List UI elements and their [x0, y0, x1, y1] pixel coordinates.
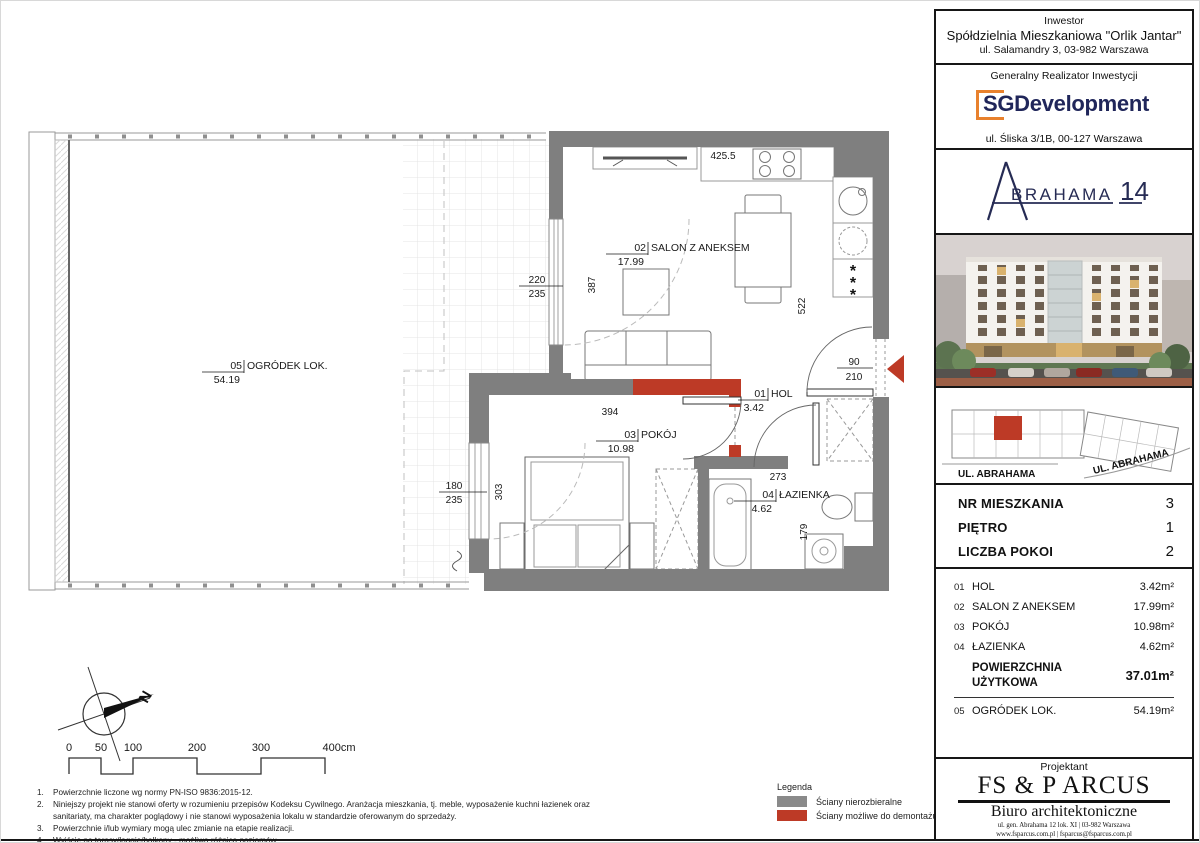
legend-item: Ściany możliwe do demontażu [777, 810, 947, 821]
wardrobe-hol [827, 399, 873, 461]
project-name: BRAHAMA [1011, 185, 1113, 204]
svg-text:100: 100 [124, 742, 142, 754]
architect-address2: www.fsparcus.com.pl | fsparcus@fsparcus.… [996, 831, 1132, 838]
svg-text:4.62: 4.62 [752, 503, 773, 515]
svg-text:10.98: 10.98 [608, 443, 634, 455]
highlighted-unit [994, 416, 1022, 440]
svg-text:01: 01 [754, 388, 766, 400]
drawing-sheet: * * * [0, 0, 1200, 843]
total-area-row: POWIERZCHNIA UŻYTKOWA 37.01m² [954, 661, 1174, 691]
project-number: 14 [1120, 176, 1149, 206]
legend-item: Ściany nierozbieralne [777, 796, 947, 807]
floor-plan: * * * [1, 1, 936, 781]
total-label-line1: POWIERZCHNIA [972, 662, 1062, 674]
investor-label: Inwestor [936, 15, 1192, 27]
svg-text:235: 235 [446, 495, 463, 506]
coffee-table [623, 269, 669, 315]
svg-text:54.19: 54.19 [214, 374, 240, 386]
wardrobe-pokoj [656, 469, 698, 569]
unit-info-row: NR MIESZKANIA 3 [958, 495, 1178, 512]
total-area-value: 37.01m² [1126, 668, 1174, 683]
dim-pokoj-height: 303 [494, 483, 505, 500]
legend-title: Legenda [777, 782, 947, 792]
svg-text:03: 03 [624, 429, 636, 441]
unit-info-label: LICZBA POKOI [958, 544, 1053, 559]
svg-text:210: 210 [846, 372, 863, 383]
dim-salon-right: 522 [797, 297, 808, 314]
sgdevelopment-logo: SGDevelopment [936, 88, 1192, 128]
nightstand [630, 523, 654, 569]
street-label-left: UL. ABRAHAMA [958, 469, 1035, 480]
legend-swatch-red [777, 810, 807, 821]
room-row: 04 ŁAZIENKA 4.62m² [954, 641, 1174, 653]
tv-bench [593, 147, 697, 169]
svg-text:SALON Z ANEKSEM: SALON Z ANEKSEM [651, 242, 750, 254]
footnote: 3. Powierzchnie i/lub wymiary mogą ulec … [37, 823, 597, 835]
toilet-tank [855, 493, 873, 521]
entrance-arrow [887, 355, 904, 383]
svg-text:200: 200 [188, 742, 206, 754]
developer-address: ul. Śliska 3/1B, 00-127 Warszawa [936, 133, 1192, 145]
unit-info-value: 2 [1166, 543, 1178, 560]
room-table: 01 HOL 3.42m² 02 SALON Z ANEKSEM 17.99m²… [936, 569, 1192, 725]
svg-text:3.42: 3.42 [744, 402, 765, 414]
sidebar-spacer [936, 725, 1192, 758]
legend-label: Ściany możliwe do demontażu [816, 811, 938, 821]
north-letter: N [136, 688, 156, 706]
room-row: 03 POKÓJ 10.98m² [954, 621, 1174, 633]
svg-text:05: 05 [230, 360, 242, 372]
svg-text:220: 220 [529, 275, 546, 286]
site-plan-map: UL. ABRAHAMA UL. ABRAHAMA [936, 388, 1192, 483]
room-row: 02 SALON Z ANEKSEM 17.99m² [954, 601, 1174, 613]
investor-block: Inwestor Spółdzielnia Mieszkaniowa "Orli… [936, 11, 1192, 65]
footnote: 1. Powierzchnie liczone wg normy PN-ISO … [37, 787, 597, 799]
unit-info-value: 3 [1166, 495, 1178, 512]
garden-row: 05 OGRÓDEK LOK. 54.19m² [954, 705, 1174, 717]
room-row: 01 HOL 3.42m² [954, 581, 1174, 593]
developer-label: Generalny Realizator Inwestycji [936, 70, 1192, 82]
room-label-garden: 05 OGRÓDEK LOK. 54.19 [202, 359, 328, 386]
unit-info-value: 1 [1166, 519, 1178, 536]
sink [839, 187, 867, 215]
svg-text:300: 300 [252, 742, 270, 754]
svg-text:235: 235 [529, 289, 546, 300]
svg-text:OGRÓDEK LOK.: OGRÓDEK LOK. [247, 359, 328, 372]
unit-info-row: PIĘTRO 1 [958, 519, 1178, 536]
footnotes: 1. Powierzchnie liczone wg normy PN-ISO … [37, 787, 597, 843]
dim-top-width: 425.5 [710, 151, 735, 162]
svg-text:50: 50 [95, 742, 107, 754]
unit-info-row: LICZBA POKOI 2 [958, 543, 1178, 560]
architect-subtitle: Biuro architektoniczne [936, 804, 1192, 820]
investor-address: ul. Salamandry 3, 03-982 Warszawa [936, 44, 1192, 56]
abrahama-logo: BRAHAMA 14 [936, 150, 1192, 228]
table-divider [954, 697, 1174, 698]
svg-text:17.99: 17.99 [618, 256, 644, 268]
svg-text:POKÓJ: POKÓJ [641, 428, 677, 441]
unit-info: NR MIESZKANIA 3 PIĘTRO 1 LICZBA POKOI 2 [936, 485, 1192, 569]
sofa [585, 331, 711, 381]
dim-lazienka-width: 273 [770, 472, 787, 483]
svg-text:90: 90 [848, 357, 860, 368]
svg-text:180: 180 [446, 481, 463, 492]
architect-address1: ul. gen. Abrahama 12 lok. XI | 03-982 Wa… [998, 822, 1131, 829]
architect-name: FS & P ARCUS [936, 773, 1192, 799]
svg-text:0: 0 [66, 742, 72, 754]
svg-text:04: 04 [762, 489, 774, 501]
building-render [936, 235, 1192, 388]
svg-text:HOL: HOL [771, 388, 793, 400]
fridge-symbol: * * * [850, 263, 857, 304]
dim-pokoj-width: 394 [602, 407, 619, 418]
title-block: Inwestor Spółdzielnia Mieszkaniowa "Orli… [934, 9, 1194, 841]
svg-text:400cm: 400cm [322, 742, 355, 754]
developer-logo-text: SGDevelopment [983, 91, 1149, 117]
total-label-line2: UŻYTKOWA [972, 677, 1038, 689]
scale-bar: 0 50 100 200 300 400cm [66, 742, 356, 774]
svg-text:ŁAZIENKA: ŁAZIENKA [779, 489, 830, 501]
investor-name: Spółdzielnia Mieszkaniowa "Orlik Jantar" [936, 28, 1192, 43]
legend-swatch-gray [777, 796, 807, 807]
legend: Legenda Ściany nierozbieralne Ściany moż… [777, 782, 947, 824]
architect-block: Projektant FS & P ARCUS Biuro architekto… [936, 757, 1192, 839]
building-render-image [936, 235, 1192, 386]
unit-info-label: NR MIESZKANIA [958, 496, 1064, 511]
nightstand [500, 523, 524, 569]
site-plan: UL. ABRAHAMA UL. ABRAHAMA [936, 388, 1192, 485]
svg-text:02: 02 [634, 242, 646, 254]
project-logo: BRAHAMA 14 [936, 150, 1192, 235]
dim-lazienka-height: 179 [799, 523, 810, 540]
svg-text:*: * [850, 287, 857, 304]
unit-info-label: PIĘTRO [958, 520, 1008, 535]
legend-label: Ściany nierozbieralne [816, 797, 902, 807]
developer-block: Generalny Realizator Inwestycji SGDevelo… [936, 65, 1192, 150]
footnote: 2. Niniejszy projekt nie stanowi oferty … [37, 799, 597, 823]
dim-salon-left: 387 [587, 276, 598, 293]
